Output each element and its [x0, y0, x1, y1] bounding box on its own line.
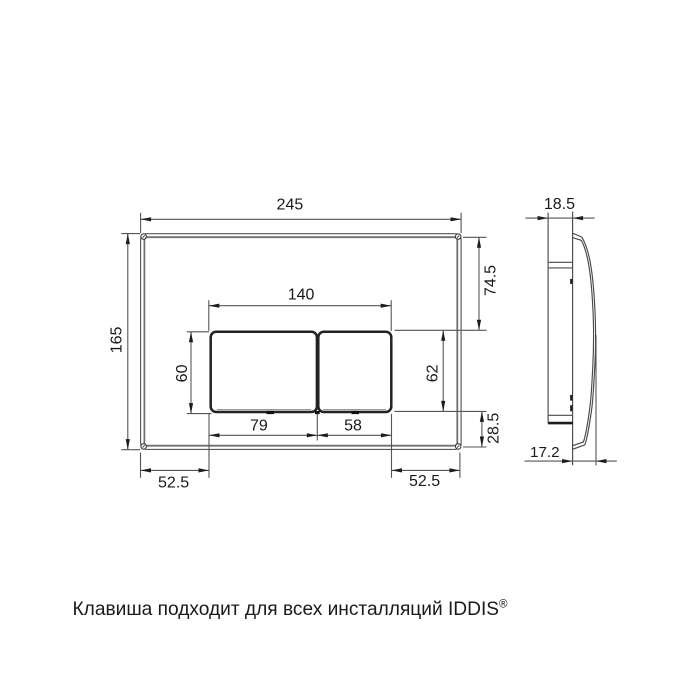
svg-text:17.2: 17.2 [530, 444, 560, 461]
svg-text:245: 245 [277, 196, 304, 213]
svg-text:52.5: 52.5 [409, 473, 440, 490]
svg-text:18.5: 18.5 [544, 196, 575, 213]
svg-text:74.5: 74.5 [483, 265, 500, 296]
svg-text:Клавиша подходит для всех инст: Клавиша подходит для всех инсталляций ID… [73, 598, 509, 620]
svg-text:60: 60 [174, 364, 191, 382]
svg-text:62: 62 [425, 364, 442, 382]
svg-text:140: 140 [288, 287, 315, 304]
svg-text:58: 58 [344, 418, 362, 435]
svg-text:165: 165 [108, 326, 125, 353]
svg-text:79: 79 [250, 418, 268, 435]
svg-text:28.5: 28.5 [486, 413, 503, 444]
svg-text:52.5: 52.5 [158, 475, 189, 492]
